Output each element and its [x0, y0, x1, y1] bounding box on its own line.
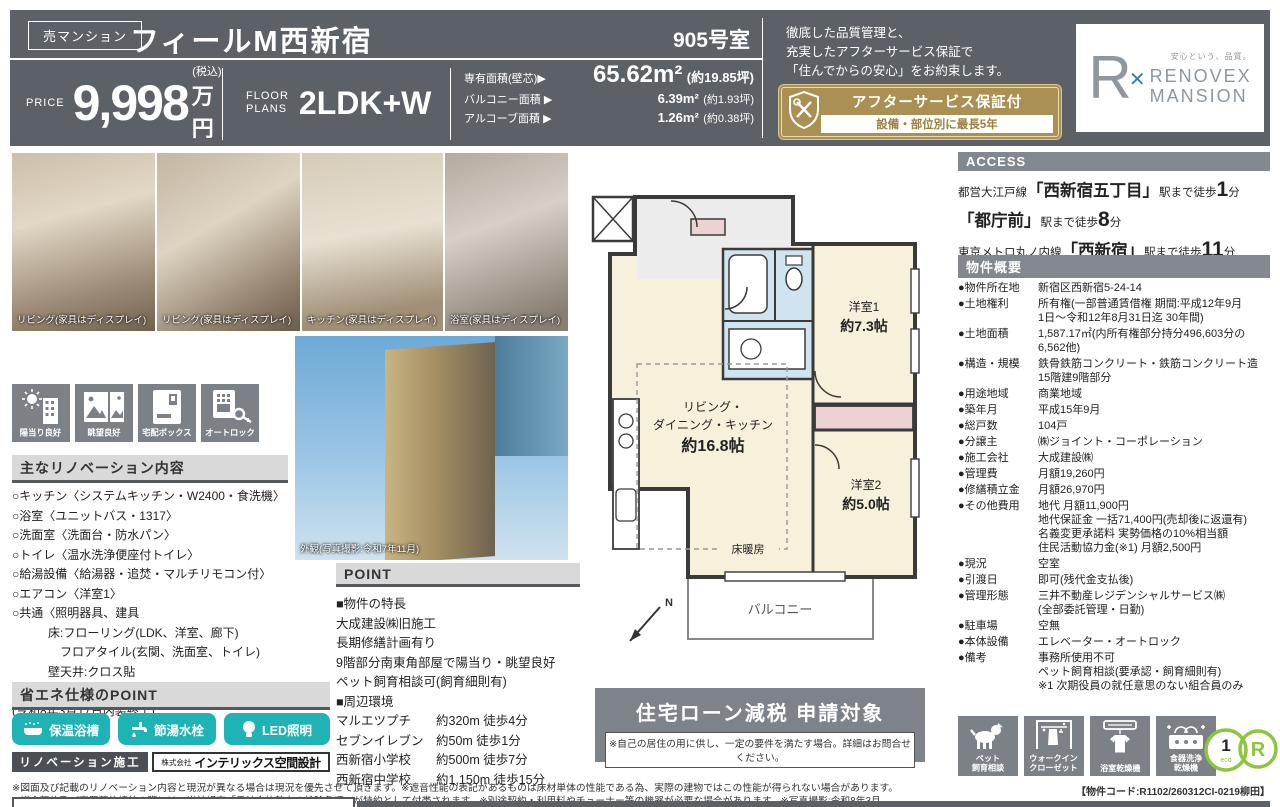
- eco-button-label: 節湯水栓: [154, 720, 204, 739]
- feature-badge-autolock: オートロック: [201, 384, 259, 442]
- photo-image: [157, 153, 300, 331]
- renovation-item: ○浴室〈ユニットバス・1317〉: [12, 507, 312, 527]
- floor-plan: 洋室1 約7.3帖 リビング・ ダイニング・キッチン 約16.8帖 洋室2 約5…: [575, 158, 960, 660]
- photo-caption: キッチン(家具はディスプレイ): [307, 312, 436, 326]
- renovation-item: ○エアコン〈洋室1〉: [12, 585, 312, 605]
- renovex-logo: R ✕ 安心という、品質。 RENOVEX MANSION: [1076, 24, 1264, 132]
- overview-row: ●備考事務所使用不可 ペット飼育相談(要承認・飼育細則有) ※1 次期役員の就任…: [958, 651, 1276, 693]
- walk-minutes: 1: [1217, 178, 1229, 202]
- renovation-item: ○洗面室〈洗面台・防水パン〉: [12, 526, 312, 546]
- overview-row: ●築年月平成15年9月: [958, 403, 1276, 417]
- overview-row: ●土地面積1,587.17㎡(内所有権部分持分496,603分の 6,562他): [958, 327, 1276, 355]
- room1-size: 約7.3帖: [840, 318, 887, 334]
- station-name: 「西新宿五丁目」: [1027, 177, 1159, 201]
- floor-heating-label: 床暖房: [732, 542, 765, 556]
- renovex-x-mark: ✕: [1129, 50, 1146, 110]
- photo-image: [445, 153, 568, 331]
- room1-name: 洋室1: [849, 299, 880, 314]
- bathtub-icon: [23, 721, 43, 737]
- quality-line: 「住んでからの安心」をお約束します。: [786, 62, 1068, 81]
- toilet: [786, 268, 802, 290]
- warranty-subtitle: 設備・部位別に最長5年: [821, 115, 1053, 133]
- amenity-bath-dryer: 浴室乾燥機: [1090, 716, 1150, 776]
- price-unit: 万円: [192, 79, 222, 143]
- dog-icon: [970, 719, 1006, 751]
- eco-spec-heading: 省エネ仕様のPOINT: [12, 682, 330, 710]
- amenity-label: 食器洗浄 乾燥機: [1170, 754, 1202, 772]
- sun-building-icon: [21, 388, 61, 426]
- bathroom-dryer-icon: [1100, 719, 1140, 755]
- eco-button-label: 保温浴槽: [49, 720, 99, 739]
- bathtub: [729, 255, 767, 313]
- walk-text: 駅まで徒歩: [1041, 214, 1099, 230]
- feature-badge-label: 眺望良好: [87, 427, 120, 439]
- area-tsubo: (約1.93坪): [703, 94, 754, 106]
- room2-size: 約5.0帖: [842, 496, 889, 512]
- ldk-label-2: ダイニング・キッチン: [653, 417, 773, 432]
- overview-row: ●修繕積立金月額26,970円: [958, 483, 1276, 497]
- area-label: アルコーブ面積 ▶: [464, 111, 552, 128]
- faucet-icon: [130, 721, 148, 737]
- access-route: 都営大江戸線 「西新宿五丁目」 駅まで徒歩 1 分: [958, 177, 1273, 202]
- housing-loan-tax-box: 住宅ローン減税 申請対象 ※自己の居住の用に供し、一定の要件を満たす場合。詳細は…: [595, 688, 925, 762]
- overview-row: ●駐車場空無: [958, 619, 1276, 633]
- area-value: 65.62m²: [593, 61, 682, 88]
- overview-table: ●物件所在地新宿区西新宿5-24-14 ●土地権利所有権(一部普通賃借権 期間:…: [958, 281, 1276, 695]
- after-service-warranty-badge: アフターサービス保証付 設備・部位別に最長5年: [778, 84, 1062, 140]
- eco-certification-marks: 1 eco R: [1202, 725, 1278, 775]
- price-label: PRICE: [26, 97, 65, 109]
- eco-button-bath: 保温浴槽: [12, 713, 110, 745]
- renovex-r-mark: R ✕: [1088, 48, 1131, 108]
- area-tsubo: (約19.85坪): [687, 70, 754, 85]
- feature-badge-label: 宅配ボックス: [142, 427, 191, 439]
- overview-row: ●土地権利所有権(一部普通賃借権 期間:平成12年9月 1日〜令和12年8月31…: [958, 297, 1276, 325]
- photo-caption: リビング(家具はディスプレイ): [17, 312, 146, 326]
- footer-band-cutoff: [357, 801, 1270, 807]
- view-icon: [82, 388, 126, 426]
- point-line: マルエツプチ 約320m 徒歩4分: [336, 712, 586, 732]
- access-heading: ACCESS: [958, 152, 1270, 171]
- logo-name-1: RENOVEX: [1150, 66, 1252, 86]
- overview-heading: 物件概要: [958, 255, 1270, 278]
- point-line: 大成建設㈱旧施工: [336, 615, 586, 635]
- point-line: ■周辺環境: [336, 693, 586, 713]
- overview-row: ●その他費用地代 月額11,900円 地代保証金 一括71,400円(売却後に返…: [958, 499, 1276, 555]
- area-value: 6.39m²: [658, 91, 699, 106]
- closet: [815, 406, 913, 430]
- point-line: 9階部分南東角部屋で陽当り・眺望良好: [336, 654, 586, 674]
- balcony-label: バルコニー: [748, 602, 813, 617]
- photo-caption: 外観(写真撮影:令和7年11月): [300, 541, 419, 555]
- feature-badge-label: 陽当り良好: [20, 427, 61, 439]
- eco-mark-number: 1: [1221, 736, 1230, 755]
- overview-row: ●物件所在地新宿区西新宿5-24-14: [958, 281, 1276, 295]
- north-label: N: [665, 597, 673, 609]
- access-route: 「都庁前」 駅まで徒歩 8 分: [958, 207, 1273, 232]
- cell-divider: [222, 68, 223, 140]
- point-line: 長期修繕計画有り: [336, 634, 586, 654]
- walk-text: 駅まで徒歩: [1159, 184, 1217, 200]
- kitchen-counter: [613, 399, 639, 549]
- renovation-item: ○キッチン〈システムキッチン・W2400・食洗機〉: [12, 487, 312, 507]
- photo-building-2: [495, 336, 568, 456]
- overview-row: ●現況空室: [958, 557, 1276, 571]
- led-bulb-icon: [242, 720, 256, 738]
- point-heading: POINT: [336, 563, 580, 587]
- area-label: 専有面積(壁芯)▶: [464, 71, 546, 88]
- point-list: ■物件の特長 大成建設㈱旧施工 長期修繕計画有り 9階部分南東角部屋で陽当り・眺…: [336, 595, 586, 790]
- feature-badge-view: 眺望良好: [75, 384, 133, 442]
- room2-name: 洋室2: [851, 477, 882, 492]
- walk-minutes: 8: [1098, 208, 1110, 232]
- photo-image: [12, 153, 155, 331]
- cell-divider: [762, 18, 763, 138]
- loan-note: ※自己の居住の用に供し、一定の要件を満たす場合。詳細はお問合せください。: [605, 732, 915, 768]
- quality-line: 徹底した品質管理と、: [786, 24, 1068, 43]
- eco-button-label: LED照明: [262, 720, 312, 739]
- loan-title: 住宅ローン減税 申請対象: [605, 697, 915, 726]
- shield-tools-icon: [787, 90, 821, 135]
- sale-type-badge: 売マンション: [28, 21, 142, 50]
- photo-exterior: 外観(写真撮影:令和7年11月): [295, 336, 568, 560]
- price-value: 9,998: [73, 74, 188, 132]
- point-line: 西新宿小学校 約500m 徒歩7分: [336, 751, 586, 771]
- closet-icon: [1035, 719, 1073, 751]
- ldk-size: 約16.8帖: [681, 436, 744, 455]
- header: 売マンション フィールM西新宿 905号室 PRICE 9,998 (税込) 万…: [10, 10, 1270, 146]
- builder-company-prefix: 株式会社: [161, 757, 191, 768]
- access-list: 都営大江戸線 「西新宿五丁目」 駅まで徒歩 1 分 「都庁前」 駅まで徒歩 8 …: [958, 177, 1273, 267]
- builder-company-name: インテリックス空間設計: [194, 754, 320, 771]
- property-code: 【物件コード:R1102/260312CI-0219柳田】: [1076, 783, 1270, 798]
- renovation-item: ○給湯設備〈給湯器・追焚・マルチリモコン付〉: [12, 565, 312, 585]
- photo-caption: 浴室(家具はディスプレイ): [450, 312, 560, 326]
- area-value: 1.26m²: [658, 110, 699, 125]
- logo-tagline: 安心という、品質。: [1171, 51, 1252, 62]
- overview-row: ●本体設備エレベーター・オートロック: [958, 635, 1276, 649]
- overview-row: ●構造・規模鉄骨鉄筋コンクリート・鉄筋コンクリート造 15階建9階部分: [958, 357, 1276, 385]
- area-tsubo: (約0.38坪): [703, 113, 754, 125]
- renovation-item: ○トイレ〈温水洗浄便座付トイレ〉: [12, 546, 312, 566]
- overview-row: ●引渡日即可(残代金支払後): [958, 573, 1276, 587]
- photo-caption: リビング(家具はディスプレイ): [162, 312, 291, 326]
- real-estate-flyer: 売マンション フィールM西新宿 905号室 PRICE 9,998 (税込) 万…: [0, 0, 1280, 807]
- photo-living-1: リビング(家具はディスプレイ): [12, 153, 155, 331]
- price-cell: PRICE 9,998 (税込) 万円: [10, 60, 222, 146]
- amenity-label: 浴室乾燥機: [1100, 764, 1140, 773]
- station-name: 「都庁前」: [958, 207, 1041, 231]
- footer-disclaimer-1: ※図面及び記載のリノベーション内容と現況が異なる場合は現況を優先させて頂きます。…: [12, 780, 898, 794]
- point-line: ■物件の特長: [336, 595, 586, 615]
- overview-row: ●管理形態三井不動産レジデンシャルサービス㈱ (全部委託管理・日勤): [958, 589, 1276, 617]
- elevator-shaft: [593, 197, 633, 241]
- minutes-unit: 分: [1110, 214, 1122, 230]
- photo-image: [302, 153, 443, 331]
- quality-statement: 徹底した品質管理と、 充実したアフターサービス保証で 「住んでからの安心」をお約…: [772, 20, 1068, 140]
- amenity-pet: ペット 飼育相談: [958, 716, 1018, 776]
- rail-line: 都営大江戸線: [958, 184, 1027, 200]
- point-line: ペット飼育相談可(飼育細則有): [336, 673, 586, 693]
- floor-plan-cell: FLOOR PLANS 2LDK+W: [232, 60, 450, 146]
- delivery-box-icon: [147, 388, 187, 426]
- overview-row: ●管理費月額19,260円: [958, 467, 1276, 481]
- amenity-walkin-closet: ウォークイン クローゼット: [1024, 716, 1084, 776]
- amenity-label: ペット 飼育相談: [972, 754, 1004, 772]
- logo-name-2: MANSION: [1150, 86, 1248, 106]
- building-title: フィールM西新宿: [130, 18, 373, 60]
- footer-contact-box-cutoff: [12, 797, 355, 807]
- minutes-unit: 分: [1228, 184, 1240, 200]
- eco-mark-text: eco: [1220, 757, 1231, 764]
- area-label: バルコニー面積 ▶: [464, 92, 552, 109]
- overview-row: ●用途地域商業地域: [958, 387, 1276, 401]
- bathroom-washroom: [723, 249, 813, 379]
- renovation-heading: 主なリノベーション内容: [12, 455, 288, 483]
- feature-badge-label: オートロック: [205, 427, 255, 439]
- eco-button-faucet: 節湯水栓: [118, 713, 216, 745]
- point-line: セブンイレブン 約50m 徒歩1分: [336, 732, 586, 752]
- photo-building: [385, 342, 495, 560]
- quality-line: 充実したアフターサービス保証で: [786, 43, 1068, 62]
- warranty-title: アフターサービス保証付: [821, 91, 1053, 112]
- overview-row: ●分譲主㈱ジョイント・コーポレーション: [958, 435, 1276, 449]
- eco-button-led: LED照明: [224, 713, 330, 745]
- floor-plans-label-2: PLANS: [246, 103, 287, 115]
- builder-label: リノベーション施工: [12, 752, 148, 772]
- feature-badge-delivery-box: 宅配ボックス: [138, 384, 196, 442]
- price-tax-note: (税込): [192, 63, 221, 79]
- dishwasher-icon: [1165, 719, 1207, 753]
- overview-row: ●総戸数104戸: [958, 419, 1276, 433]
- north-arrow: N: [630, 597, 673, 641]
- floor-plans-label-1: FLOOR: [246, 90, 289, 102]
- ldk-label-1: リビング・: [683, 400, 743, 414]
- photo-bathroom: 浴室(家具はディスプレイ): [445, 153, 568, 331]
- autolock-icon: [207, 388, 253, 426]
- floor-plans-value: 2LDK+W: [299, 85, 431, 122]
- overview-row: ●施工会社大成建設㈱: [958, 451, 1276, 465]
- cell-divider: [450, 68, 451, 140]
- amenity-label: ウォークイン クローゼット: [1030, 754, 1078, 772]
- area-cell: 専有面積(壁芯)▶ 65.62m² (約19.85坪) バルコニー面積 ▶ 6.…: [458, 62, 762, 146]
- room-number: 905号室: [630, 24, 750, 54]
- builder-company-logo: 株式会社 インテリックス空間設計: [152, 752, 330, 772]
- photo-living-2: リビング(家具はディスプレイ): [157, 153, 300, 331]
- photo-kitchen: キッチン(家具はディスプレイ): [302, 153, 443, 331]
- feature-badge-sunny: 陽当り良好: [12, 384, 70, 442]
- r-mark: R: [1251, 739, 1266, 761]
